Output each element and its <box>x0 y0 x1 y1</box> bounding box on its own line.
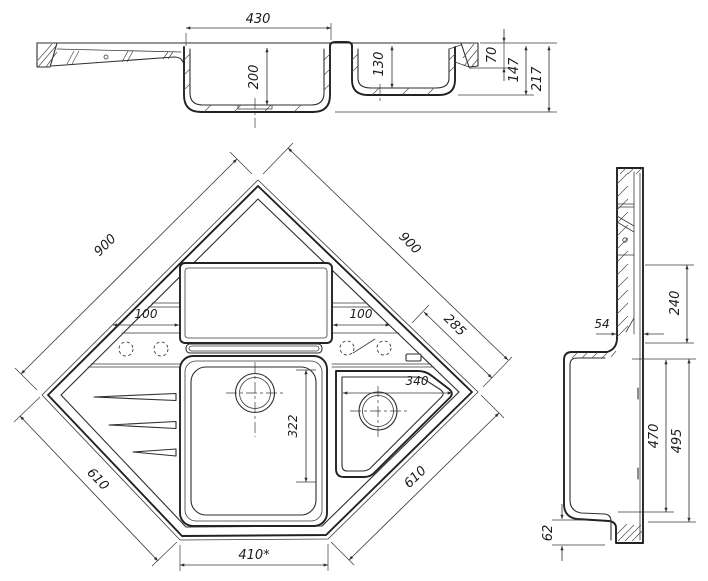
dim-small-bowl-width: 340 <box>406 374 429 388</box>
front-section-view: 430 200 130 70 147 217 <box>37 12 557 128</box>
dim-overall-depth: 495 <box>670 429 685 454</box>
dim-main-depth: 200 <box>247 65 262 90</box>
dim-upper-height: 240 <box>668 291 683 316</box>
dim-front-edge: 410* <box>238 548 270 563</box>
dim-corner-inset: 285 <box>440 311 468 339</box>
drainboard-hole <box>104 55 108 59</box>
second-bowl-section <box>352 47 455 104</box>
dim-bowl-width: 430 <box>246 12 271 27</box>
left-cut-block <box>37 43 57 67</box>
mount-hole <box>623 238 627 242</box>
front-dimensions: 430 200 130 70 147 217 <box>186 12 557 112</box>
dim-mid-height: 147 <box>507 57 522 83</box>
dim-deck-left: 100 <box>135 307 158 321</box>
dim-main-bowl-length: 322 <box>286 415 300 438</box>
dim-edge-lower-left: 610 <box>83 465 111 493</box>
side-section-view: 54 240 470 495 62 <box>541 168 696 561</box>
dim-second-depth: 130 <box>372 52 387 77</box>
plan-view: 900 900 285 610 610 410* 100 100 <box>14 143 512 571</box>
dim-ledge-thickness: 54 <box>594 317 609 331</box>
sink-drawing: 430 200 130 70 147 217 <box>0 0 708 581</box>
main-bowl-plan <box>180 356 327 526</box>
dim-bowl-depth: 470 <box>647 424 662 449</box>
bowl-divider <box>330 42 352 47</box>
dim-deck-right: 100 <box>350 307 373 321</box>
rear-shelf <box>180 263 332 353</box>
shelf-step <box>186 344 322 353</box>
dim-edge-upper-right: 900 <box>395 229 423 257</box>
dim-edge-upper-left: 900 <box>91 231 119 259</box>
right-cut-block <box>449 43 478 67</box>
dim-base-height: 62 <box>541 525 556 542</box>
dim-rim-height: 70 <box>485 47 500 64</box>
dim-overall-height: 217 <box>530 66 545 92</box>
back-panel <box>617 168 643 543</box>
dim-edge-lower-right: 610 <box>401 463 429 491</box>
technical-drawing-canvas: 430 200 130 70 147 217 <box>0 0 708 581</box>
overflow-slot <box>406 354 421 361</box>
drainboard-section <box>51 49 183 66</box>
